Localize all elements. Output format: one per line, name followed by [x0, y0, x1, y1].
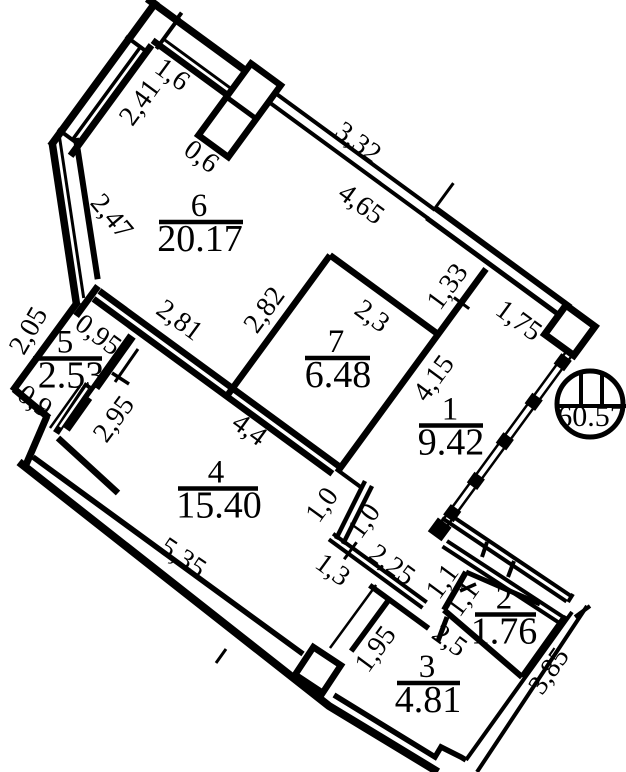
- svg-text:6.48: 6.48: [305, 354, 372, 396]
- svg-text:9.42: 9.42: [418, 422, 485, 464]
- svg-text:4.81: 4.81: [395, 679, 462, 721]
- svg-text:1.76: 1.76: [471, 611, 538, 653]
- svg-text:2.53: 2.53: [38, 355, 105, 397]
- svg-text:15.40: 15.40: [176, 485, 262, 527]
- svg-text:60.57: 60.57: [557, 400, 625, 433]
- svg-text:20.17: 20.17: [157, 218, 243, 260]
